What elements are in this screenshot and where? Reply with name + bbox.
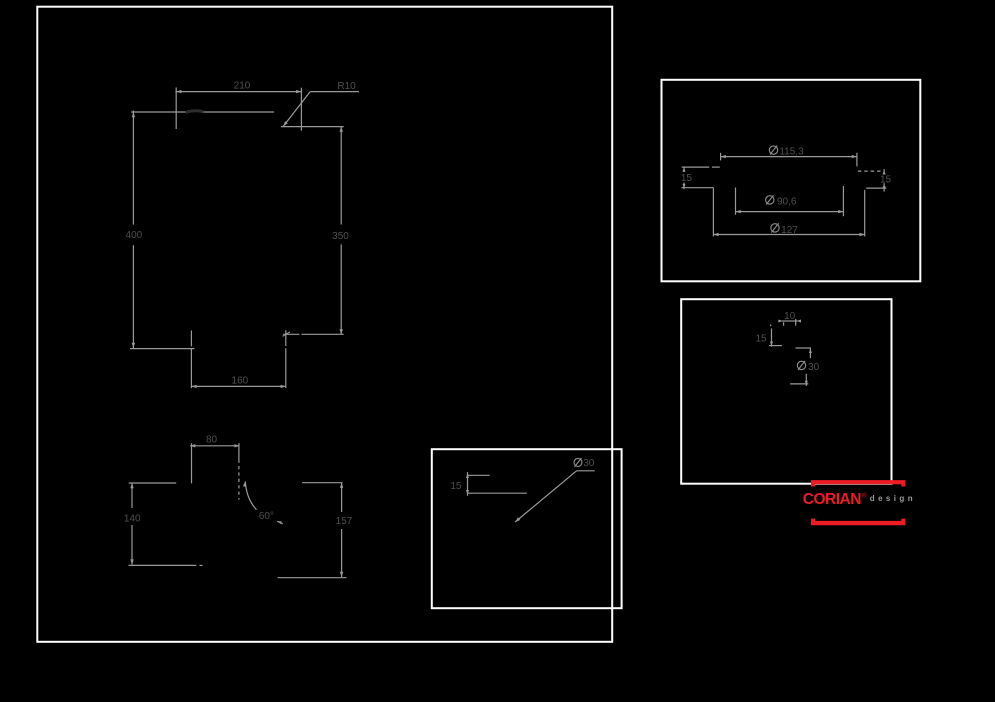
svg-text:140: 140: [124, 514, 141, 525]
svg-text:160: 160: [232, 376, 249, 387]
svg-text:90,6: 90,6: [777, 197, 797, 208]
svg-text:15: 15: [450, 481, 462, 492]
svg-text:10: 10: [784, 311, 796, 322]
svg-text:CORIAN: CORIAN: [803, 491, 861, 508]
svg-text:115,3: 115,3: [779, 147, 804, 158]
svg-text:®: ®: [862, 492, 867, 500]
svg-text:60°: 60°: [259, 511, 274, 522]
svg-text:R10: R10: [337, 81, 356, 92]
svg-text:210: 210: [234, 80, 251, 91]
svg-text:15: 15: [681, 173, 693, 184]
svg-text:15: 15: [755, 334, 767, 345]
svg-text:127: 127: [781, 225, 798, 236]
svg-text:350: 350: [332, 231, 349, 242]
svg-text:30: 30: [808, 362, 820, 373]
svg-text:400: 400: [126, 230, 143, 241]
svg-text:30: 30: [583, 458, 595, 469]
svg-text:157: 157: [336, 516, 353, 527]
svg-text:design: design: [870, 494, 916, 503]
svg-text:80: 80: [206, 434, 218, 445]
svg-text:15: 15: [880, 174, 892, 185]
